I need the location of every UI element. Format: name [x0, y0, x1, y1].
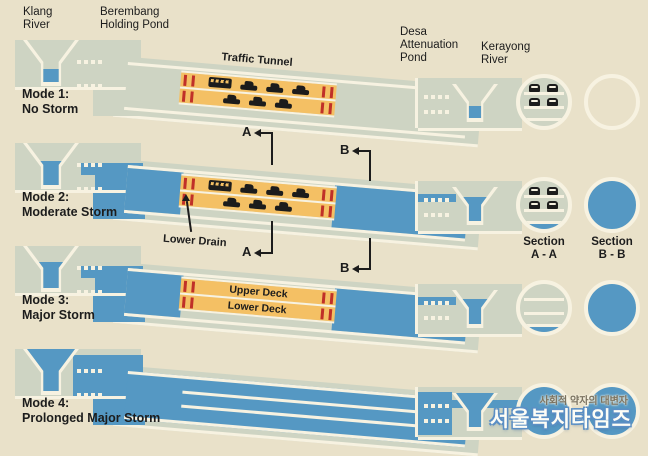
flood-water — [418, 392, 452, 435]
river-water — [27, 161, 75, 185]
mode-1-row: Traffic Tunnel Mode 1: No Storm — [0, 40, 648, 144]
river-water — [456, 106, 494, 118]
klang-ground-block — [15, 143, 141, 190]
section-bb-circle-mode3 — [584, 280, 640, 336]
car-icon — [266, 82, 284, 92]
klang-river-channel — [23, 349, 79, 395]
car-icon — [291, 84, 309, 94]
klang-river-channel — [23, 143, 79, 189]
section-water — [520, 224, 568, 229]
car-icon — [222, 94, 240, 104]
watermark-name: 서울복지타임즈 — [490, 403, 632, 433]
bus-icon — [208, 179, 232, 191]
section-aa-label: Section A - A — [512, 236, 576, 262]
red-marker-icon — [183, 177, 187, 188]
floodgate-dashes — [77, 163, 104, 167]
red-marker-icon — [183, 280, 187, 291]
floodgate-dashes — [424, 404, 451, 408]
floodgate-dashes — [424, 419, 451, 423]
marker-line — [369, 238, 371, 269]
arrow-left-icon — [254, 249, 261, 257]
car-front-icon — [547, 84, 558, 92]
tunnel-water — [124, 168, 183, 215]
car-front-icon — [529, 98, 540, 106]
car-front-icon — [529, 201, 540, 209]
floodgate-dashes — [424, 95, 451, 99]
section-bb-circle-mode1 — [584, 74, 640, 130]
mode-4-label: Mode 4: Prolonged Major Storm — [22, 396, 160, 425]
red-marker-icon — [322, 292, 326, 303]
section-bb-circle-mode2 — [584, 177, 640, 233]
arrow-left-icon — [352, 147, 359, 155]
section-aa-circle-mode3 — [516, 280, 572, 336]
river-water — [456, 393, 494, 427]
arrow-up-icon — [182, 194, 190, 201]
red-marker-icon — [320, 102, 324, 113]
red-marker-icon — [182, 296, 186, 307]
red-marker-icon — [328, 205, 332, 216]
klang-ground-block — [15, 246, 141, 293]
red-marker-icon — [330, 87, 334, 98]
floodgate-dashes — [77, 84, 104, 88]
arrow-left-icon — [352, 265, 359, 273]
floodgate-dashes — [424, 213, 451, 217]
section-marker-b-bottom: B — [340, 260, 349, 275]
floodgate-dashes — [77, 60, 104, 64]
marker-line — [271, 132, 273, 165]
klang-ground-block — [15, 349, 141, 396]
river-water — [27, 349, 75, 391]
red-marker-icon — [328, 102, 332, 113]
kerayong-ground-block — [418, 78, 522, 128]
mode-1-label: Mode 1: No Storm — [22, 87, 78, 116]
car-icon — [274, 201, 292, 211]
river-water — [456, 197, 494, 221]
mode-2-row: Mode 2: Moderate Storm — [0, 143, 648, 247]
red-marker-icon — [182, 90, 186, 101]
floodgate-dashes — [77, 266, 104, 270]
car-front-icon — [547, 98, 558, 106]
red-marker-icon — [320, 308, 324, 319]
car-icon — [248, 96, 266, 106]
klang-ground-block — [15, 40, 141, 87]
kerayong-river-channel — [452, 187, 498, 225]
section-aa-circle-mode2 — [516, 177, 572, 233]
klang-river-label: Klang River — [23, 6, 52, 32]
car-icon — [240, 80, 258, 90]
section-bb-label: Section B - B — [580, 236, 644, 262]
berembang-pond-label: Berembang Holding Pond — [100, 6, 169, 32]
kerayong-river-channel — [452, 84, 498, 122]
floodgate-dashes — [424, 316, 451, 320]
car-front-icon — [547, 201, 558, 209]
traffic-deck — [179, 71, 337, 118]
klang-river-channel — [23, 40, 79, 86]
river-water — [27, 262, 75, 288]
section-marker-a-bottom: A — [242, 244, 251, 259]
floodgate-dashes — [424, 110, 451, 114]
kerayong-ground-block — [418, 284, 522, 334]
red-marker-icon — [183, 74, 187, 85]
klang-river-channel — [23, 246, 79, 292]
car-icon — [248, 199, 266, 209]
floodgate-dashes — [77, 369, 104, 373]
river-water — [456, 299, 494, 325]
floodgate-dashes — [424, 301, 451, 305]
kerayong-river-channel — [452, 290, 498, 328]
floodgate-dashes — [424, 198, 451, 202]
kerayong-ground-block — [418, 181, 522, 231]
traffic-deck: Upper Deck Lower Deck — [179, 277, 337, 324]
section-marker-b-top: B — [340, 142, 349, 157]
traffic-deck — [179, 174, 337, 221]
car-front-icon — [529, 187, 540, 195]
section-water — [520, 327, 568, 332]
mode-3-label: Mode 3: Major Storm — [22, 293, 95, 322]
tunnel-water — [124, 271, 183, 318]
red-marker-icon — [330, 293, 334, 304]
deck-line — [181, 405, 456, 431]
red-marker-icon — [328, 308, 332, 319]
red-marker-icon — [330, 190, 334, 201]
bus-icon — [208, 76, 232, 88]
section-marker-a-top: A — [242, 124, 251, 139]
car-front-icon — [547, 187, 558, 195]
red-marker-icon — [320, 205, 324, 216]
car-icon — [274, 98, 292, 108]
car-icon — [240, 183, 258, 193]
red-marker-icon — [322, 86, 326, 97]
marker-line — [271, 221, 273, 254]
river-water — [27, 69, 75, 82]
deck-line — [182, 391, 457, 417]
arrow-left-icon — [254, 129, 261, 137]
car-front-icon — [529, 84, 540, 92]
car-icon — [266, 185, 284, 195]
marker-line — [369, 150, 371, 181]
car-icon — [222, 197, 240, 207]
red-marker-icon — [322, 189, 326, 200]
section-aa-circle-mode1 — [516, 74, 572, 130]
mode-2-label: Mode 2: Moderate Storm — [22, 190, 117, 219]
car-icon — [291, 187, 309, 197]
